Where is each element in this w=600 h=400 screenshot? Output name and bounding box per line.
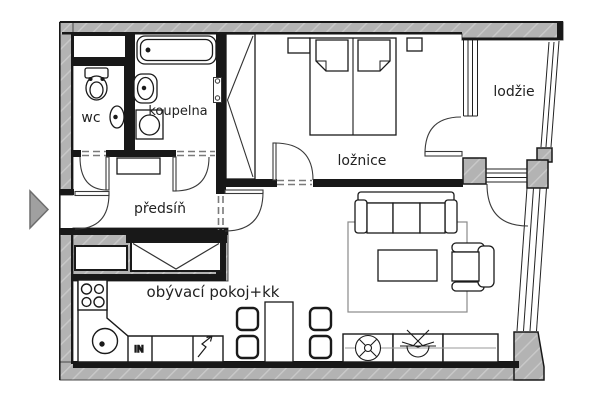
wall-bedroom-south-right — [313, 179, 463, 187]
living-furniture — [237, 192, 498, 362]
label-wc: wc — [81, 110, 100, 126]
living-room-door — [225, 190, 263, 231]
entry-jamb-top — [59, 189, 74, 195]
hallway-closet — [75, 246, 127, 270]
window-living-east — [517, 188, 547, 331]
towel-radiator — [214, 78, 222, 103]
wc-door — [80, 157, 109, 190]
dining-table — [265, 302, 293, 362]
bathroom-fixtures — [134, 36, 216, 139]
top-wall — [60, 22, 563, 40]
loggia-railing — [541, 41, 559, 147]
koupelna-door — [173, 157, 209, 191]
nightstand-right — [407, 38, 422, 51]
bedroom-furniture — [226, 34, 422, 179]
coffee-table — [378, 250, 437, 281]
ventilation-shaft — [73, 35, 126, 58]
label-obyvaci-pokoj: obývací pokoj+kk — [147, 283, 280, 301]
label-lodzie: lodžie — [493, 84, 534, 100]
tv-bench — [343, 330, 498, 362]
fan-symbol — [356, 336, 381, 361]
wall-wc-north — [72, 59, 128, 66]
double-bed — [310, 38, 396, 135]
label-koupelna: koupelna — [148, 104, 207, 119]
pier-living-top-right — [527, 160, 548, 188]
wall-storage-top — [60, 228, 228, 235]
bedroom-door — [273, 143, 313, 180]
floor-plan-drawing: IN wc koupelna předsíň ložnice lodžie ob… — [0, 0, 600, 400]
floor-plan: IN wc koupelna předsíň ložnice lodžie ob… — [0, 0, 600, 400]
pillow-left — [316, 40, 348, 71]
pier-bottom-right — [514, 332, 544, 380]
pier-bedroom-loggia — [463, 158, 486, 184]
dining-chair — [237, 308, 258, 330]
wc-sink — [110, 106, 124, 128]
toilet — [85, 68, 108, 100]
bedroom-balcony-door — [425, 117, 462, 156]
pillow-right — [358, 40, 390, 71]
window-loggia-living — [486, 169, 527, 182]
entry-door — [75, 192, 109, 230]
nightstand-left — [288, 38, 310, 53]
stove — [78, 280, 107, 310]
sofa — [355, 192, 457, 233]
dining-chair — [310, 336, 331, 358]
entry-jamb-bottom — [59, 229, 74, 235]
dining-set — [237, 302, 331, 362]
window-bedroom-loggia — [464, 40, 478, 116]
armchair — [452, 243, 494, 291]
living-balcony-door — [487, 184, 528, 226]
hallway-cabinet — [117, 158, 160, 174]
kitchen-unit-label: IN — [134, 345, 143, 355]
kitchen-sink — [93, 329, 118, 354]
wall-south-wc-left-jamb — [72, 150, 81, 157]
bathroom-sink — [134, 74, 157, 103]
bedroom-wardrobe — [226, 34, 255, 179]
wall-south-mid — [106, 150, 176, 157]
hallway-wardrobe — [131, 242, 221, 271]
dining-chair — [237, 336, 258, 358]
entry-arrow — [30, 191, 48, 228]
label-predsin: předsíň — [134, 201, 186, 217]
dining-chair — [310, 308, 331, 330]
wall-koupelna-bedroom — [216, 34, 226, 187]
bathtub — [137, 36, 216, 64]
label-loznice: ložnice — [338, 153, 387, 169]
wall-bedroom-south-left — [225, 179, 277, 187]
